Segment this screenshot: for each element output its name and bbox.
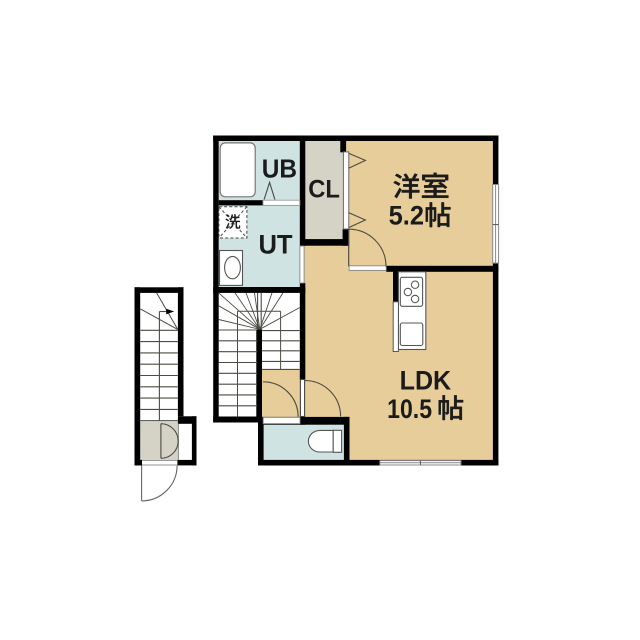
svg-text:LDK: LDK: [400, 367, 452, 396]
svg-text:5.2: 5.2: [389, 200, 424, 231]
svg-text:UT: UT: [258, 229, 292, 259]
svg-text:CL: CL: [308, 176, 340, 204]
svg-text:10.5: 10.5: [387, 396, 432, 425]
svg-text:UB: UB: [262, 155, 297, 184]
